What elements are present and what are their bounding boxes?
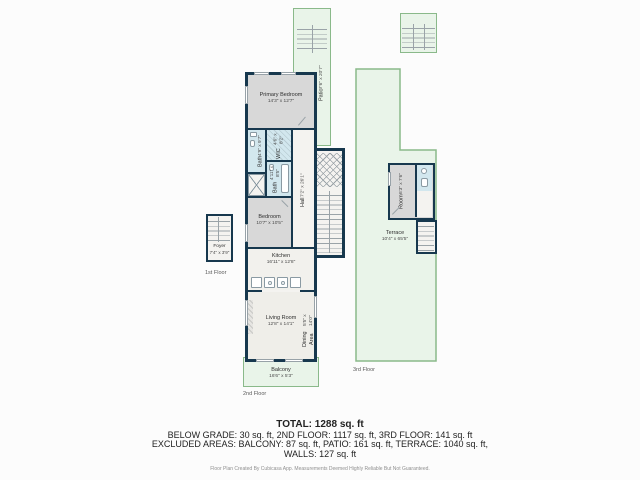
stairs-icon bbox=[208, 217, 230, 242]
second-floor-unit: Primary Bedroom 14'3" x 12'7" Bath 4'9" … bbox=[245, 72, 317, 362]
area-summary: TOTAL: 1288 sq. ft BELOW GRADE: 30 sq. f… bbox=[0, 419, 640, 472]
door-swing-icon bbox=[392, 207, 400, 215]
third-floor-room: Room 6'3" x 7'6" bbox=[388, 163, 435, 220]
window-icon bbox=[281, 72, 296, 75]
third-floor-bath bbox=[417, 165, 432, 191]
exterior-stairs-area bbox=[400, 13, 437, 53]
hall: Hall 7'2" x 26'1" bbox=[293, 130, 314, 249]
walls-area-text: WALLS: 127 sq. ft bbox=[0, 450, 640, 459]
stairs-icon bbox=[297, 25, 327, 53]
bedroom: Bedroom 10'7" x 10'5" bbox=[248, 198, 291, 247]
terrace-label: Terrace 10'4" x 65'5" bbox=[368, 230, 422, 243]
bedroom-label: Bedroom 10'7" x 10'5" bbox=[248, 214, 291, 227]
primary-bedroom-label: Primary Bedroom 14'3" x 12'7" bbox=[248, 92, 314, 105]
door-swing-icon bbox=[281, 200, 288, 207]
bath2-label: Bath 4'11" x 8'5" bbox=[272, 165, 280, 193]
window-icon bbox=[254, 72, 269, 75]
basin-icon bbox=[281, 281, 285, 285]
second-floor-label: 2nd Floor bbox=[243, 391, 266, 397]
living-room: Living Room 12'8" x 14'1" Dining Area 5'… bbox=[248, 292, 314, 359]
stair-rail bbox=[329, 191, 330, 253]
third-floor-landing bbox=[417, 191, 432, 217]
closet-icon bbox=[248, 174, 265, 196]
dining-area-label: Dining Area 5'5" x 14'0" bbox=[305, 312, 313, 350]
stair-rail bbox=[424, 24, 425, 50]
stairs-icon bbox=[402, 24, 435, 50]
stairs-icon bbox=[317, 191, 342, 253]
total-area-text: TOTAL: 1288 sq. ft bbox=[0, 419, 640, 430]
counter-icon bbox=[251, 277, 262, 288]
floor-plan-canvas: Patio 7'6" x 20'7" Balcony 16'6" x 5'3" … bbox=[0, 0, 640, 480]
window-icon bbox=[285, 359, 303, 362]
wic-label: WIC 4'6" x 8'2" bbox=[275, 131, 284, 159]
toilet-icon bbox=[421, 178, 428, 187]
window-icon bbox=[245, 224, 248, 242]
first-floor-label: 1st Floor bbox=[205, 270, 226, 276]
kitchen-label: Kitchen 16'11" x 12'8" bbox=[248, 253, 314, 266]
patio-label: Patio 7'6" x 20'7" bbox=[317, 59, 327, 107]
hall-label: Hall 7'2" x 26'1" bbox=[299, 168, 308, 212]
window-icon bbox=[388, 172, 391, 186]
stove-icon bbox=[264, 277, 275, 288]
stair-rail bbox=[413, 24, 414, 50]
bath1-label: Bath 4'9" x 9'7" bbox=[257, 134, 265, 168]
kitchen: Kitchen 16'11" x 12'8" bbox=[248, 249, 314, 290]
window-icon bbox=[245, 86, 248, 104]
third-floor-stairs bbox=[416, 220, 437, 254]
burner-icon bbox=[268, 281, 272, 285]
window-icon bbox=[256, 359, 274, 362]
sink-icon bbox=[277, 277, 288, 288]
first-floor-foyer: Foyer 7'4" x 3'9" bbox=[206, 214, 233, 262]
third-floor-label: 3rd Floor bbox=[353, 367, 375, 373]
bathroom-1: Bath 4'9" x 9'7" bbox=[248, 130, 265, 172]
stairwell bbox=[314, 148, 345, 258]
primary-bedroom: Primary Bedroom 14'3" x 12'7" bbox=[248, 75, 314, 128]
toilet-icon bbox=[250, 140, 255, 147]
walk-in-closet: WIC 4'6" x 8'2" bbox=[267, 130, 291, 160]
stairs-icon bbox=[418, 222, 434, 251]
stair-rail bbox=[218, 217, 219, 242]
counter-icon bbox=[290, 277, 301, 288]
bathroom-2: Bath 4'11" x 8'5" bbox=[267, 162, 291, 196]
room-label: Room 6'3" x 7'6" bbox=[397, 173, 407, 209]
disclaimer-text: Floor Plan Created By Cubicasa App. Meas… bbox=[0, 466, 640, 472]
sink-icon bbox=[421, 168, 427, 174]
window-icon bbox=[245, 300, 248, 326]
sink-icon bbox=[250, 132, 257, 137]
window-icon bbox=[314, 296, 317, 318]
closet-icon bbox=[317, 153, 342, 187]
balcony-label: Balcony 16'6" x 5'3" bbox=[244, 367, 318, 380]
foyer-label: Foyer 7'4" x 3'9" bbox=[202, 244, 237, 256]
stair-rail bbox=[312, 25, 313, 53]
door-swing-icon bbox=[298, 117, 306, 126]
